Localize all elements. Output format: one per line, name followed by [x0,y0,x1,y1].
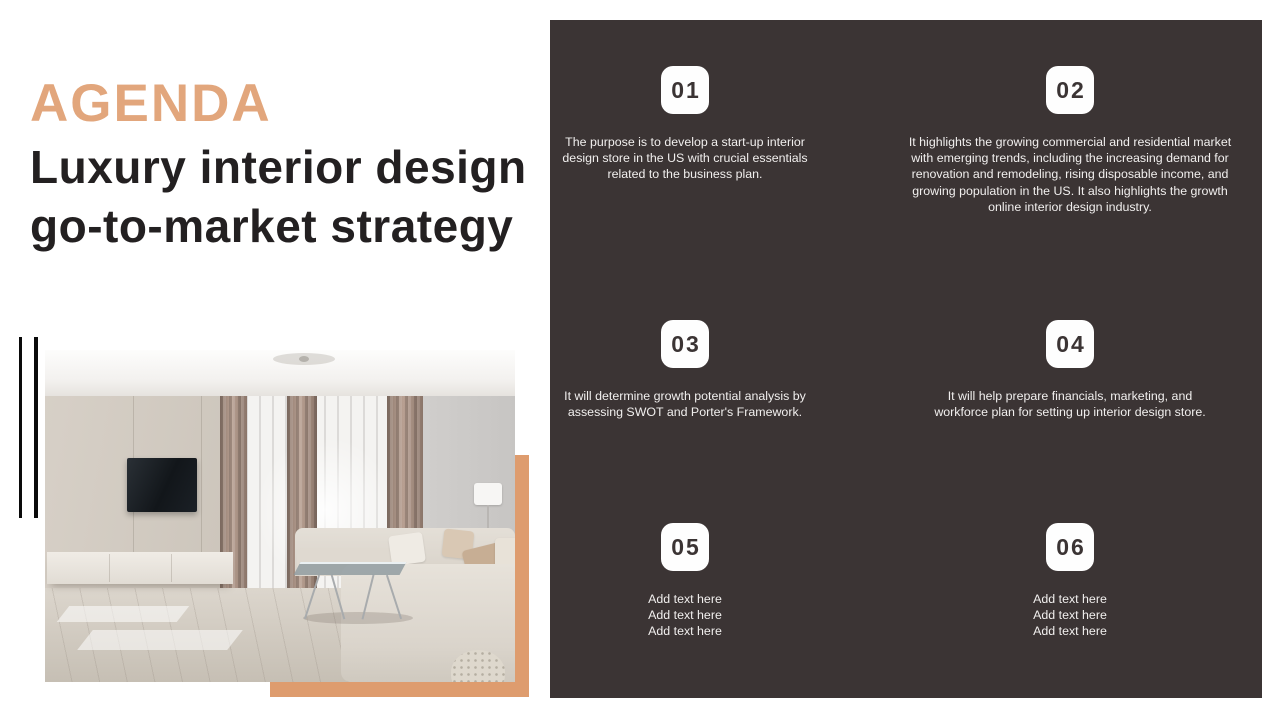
item-number-badge: 02 [1046,66,1094,114]
item-placeholder-text[interactable]: Add text here Add text here Add text her… [1033,591,1107,640]
item-description: It highlights the growing commercial and… [909,134,1231,215]
photo-floor-lamp [474,483,502,505]
photo-wall-seam [201,390,202,576]
item-number-badge: 05 [661,523,709,571]
agenda-item-04: 04 It will help prepare financials, mark… [890,320,1250,420]
vertical-accent-line [34,337,38,518]
photo-ceiling-medallion [273,353,335,365]
item-number: 02 [1054,77,1086,104]
living-room-photo [45,350,515,682]
item-placeholder-text[interactable]: Add text here Add text here Add text her… [648,591,722,640]
photo-console-seam [109,554,110,582]
photo-sunlight-patch [77,630,243,650]
item-number: 03 [669,331,701,358]
photo-coffee-table [294,562,407,575]
agenda-item-06: 06 Add text here Add text here Add text … [890,523,1250,640]
item-number-badge: 01 [661,66,709,114]
item-number: 04 [1054,331,1086,358]
photo-tv [127,458,197,512]
item-number-badge: 03 [661,320,709,368]
photo-console-seam [171,554,172,582]
item-description: It will help prepare financials, marketi… [934,388,1205,420]
agenda-item-03: 03 It will determine growth potential an… [542,320,828,420]
item-number-badge: 04 [1046,320,1094,368]
agenda-item-05: 05 Add text here Add text here Add text … [542,523,828,640]
agenda-item-01: 01 The purpose is to develop a start-up … [542,66,828,183]
agenda-panel: 01 The purpose is to develop a start-up … [550,20,1262,698]
photo-sunlight-patch [57,606,190,622]
item-number: 01 [669,77,701,104]
slide-title: Luxury interior design go-to-market stra… [30,138,527,256]
agenda-slide: AGENDA Luxury interior design go-to-mark… [0,0,1280,720]
item-number-badge: 06 [1046,523,1094,571]
item-description: It will determine growth potential analy… [564,388,806,420]
vertical-accent-line [19,337,22,518]
photo-table-shadow [303,612,413,624]
photo-tv-console [47,552,233,584]
item-number: 06 [1054,534,1086,561]
item-number: 05 [669,534,701,561]
item-description: The purpose is to develop a start-up int… [562,134,807,183]
agenda-heading: AGENDA [30,77,272,130]
agenda-item-02: 02 It highlights the growing commercial … [890,66,1250,215]
